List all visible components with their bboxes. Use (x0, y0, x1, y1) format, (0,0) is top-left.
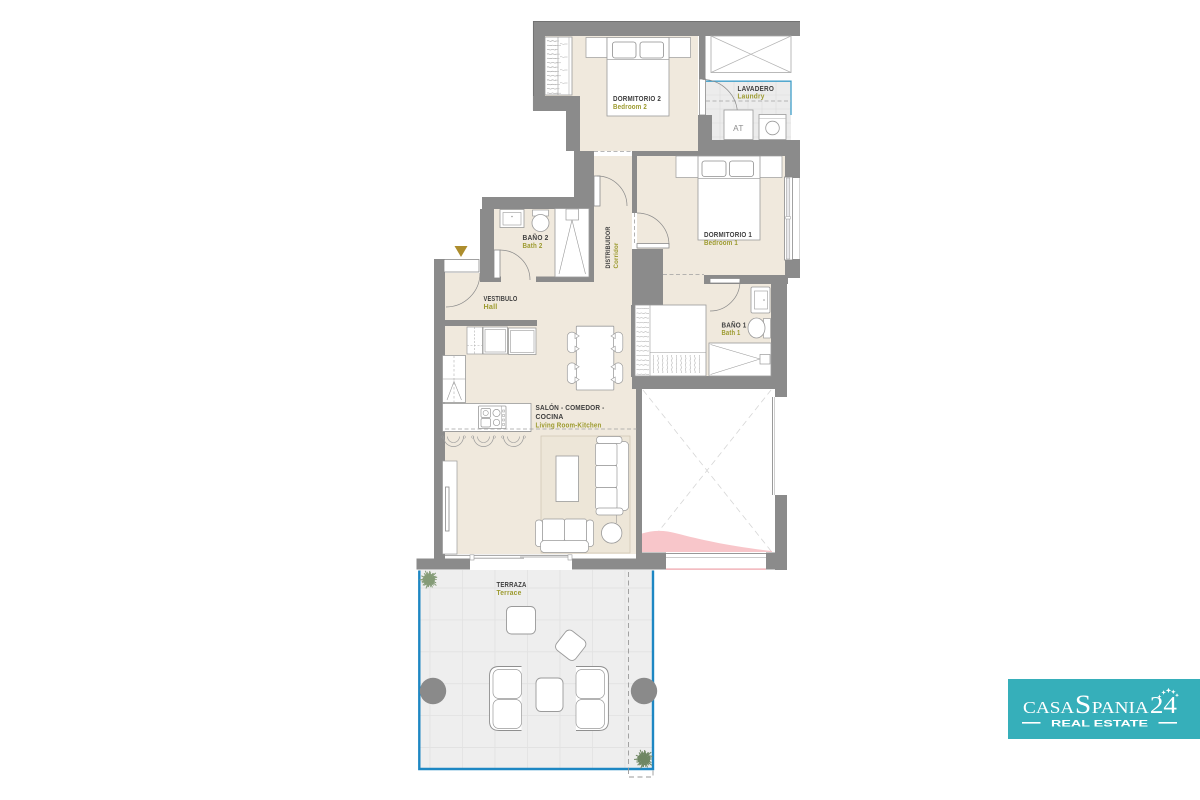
svg-text:Living Room-Kitchen: Living Room-Kitchen (536, 421, 602, 430)
svg-text:BAÑO 2: BAÑO 2 (523, 233, 549, 242)
svg-text:REAL ESTATE: REAL ESTATE (1051, 718, 1148, 729)
svg-text:Hall: Hall (484, 304, 498, 311)
svg-text:Bedroom 1: Bedroom 1 (704, 240, 738, 247)
svg-text:DORMITORIO 2: DORMITORIO 2 (613, 96, 661, 103)
svg-text:DISTRIBUIDOR: DISTRIBUIDOR (605, 226, 612, 268)
svg-text:AT: AT (733, 124, 744, 133)
svg-text:Terrace: Terrace (497, 590, 522, 597)
svg-text:VESTIBULO: VESTIBULO (484, 296, 518, 303)
svg-text:Corridor: Corridor (613, 242, 620, 268)
svg-text:TERRAZA: TERRAZA (497, 582, 527, 589)
svg-text:Bedroom 2: Bedroom 2 (613, 104, 647, 111)
svg-text:BAÑO 1: BAÑO 1 (722, 321, 747, 330)
svg-text:Bath 2: Bath 2 (523, 243, 543, 250)
svg-text:DORMITORIO 1: DORMITORIO 1 (704, 232, 752, 239)
svg-text:LAVADERO: LAVADERO (738, 86, 775, 93)
svg-text:Laundry: Laundry (738, 94, 765, 101)
svg-text:SALÓN - COMEDOR -: SALÓN - COMEDOR - (536, 403, 605, 412)
svg-text:Bath 1: Bath 1 (722, 330, 741, 337)
